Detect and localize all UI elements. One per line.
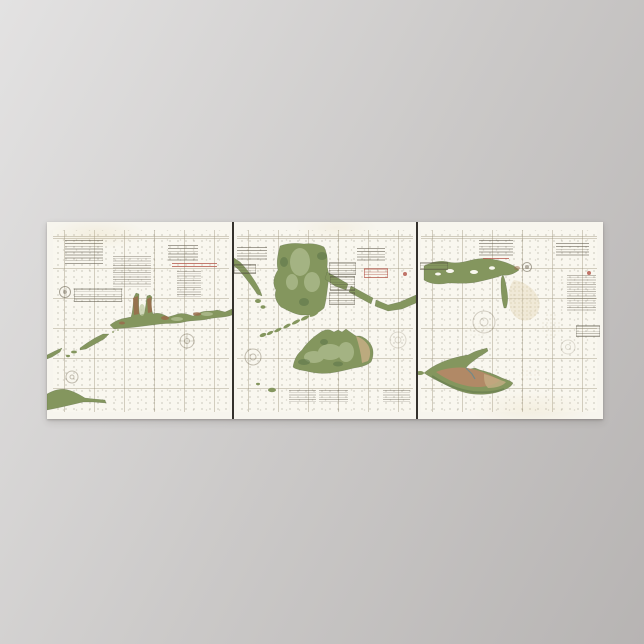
plum-island-sliver: [47, 348, 62, 359]
tuckernuck-islet: [418, 371, 424, 375]
sheet-join-line: [232, 222, 234, 419]
compass-rose: [66, 333, 195, 383]
tide-table: [330, 276, 355, 291]
tide-table: [329, 262, 356, 275]
tide-table: [234, 264, 256, 274]
sheet-join-line: [416, 222, 418, 419]
red-rosette-icon: [403, 272, 407, 276]
long-island-north-fork-tip: [47, 389, 106, 410]
chart-sheet: [47, 222, 603, 419]
chart-panel-middle: [234, 222, 416, 419]
survey-seal-icon: [59, 286, 71, 298]
notes-paragraph: [177, 271, 201, 297]
red-scale-bars: [483, 258, 509, 261]
survey-seal-icon: [522, 262, 532, 272]
title-block: [357, 248, 385, 262]
red-note-box: [364, 268, 388, 278]
title-block: [65, 240, 103, 266]
monomoy-spit: [501, 275, 508, 308]
title-block: [237, 247, 267, 260]
notes-paragraph: [289, 390, 316, 402]
title-block: [168, 245, 198, 261]
nantucket-island: [418, 348, 513, 394]
title-block: [556, 243, 589, 257]
chart-panel-right: [418, 222, 603, 419]
studio-background: [0, 0, 644, 644]
tide-table: [329, 292, 355, 305]
red-rosette-icon: [587, 271, 591, 275]
title-block: [479, 240, 513, 256]
shoal-stippling: [466, 278, 583, 381]
notes-paragraph: [113, 256, 151, 288]
tide-table: [420, 262, 448, 270]
notes-paragraph: [319, 390, 348, 402]
notes-paragraph: [383, 390, 410, 402]
outlying-islets: [256, 383, 276, 392]
notes-paragraph: [567, 275, 596, 311]
tide-table: [74, 288, 122, 302]
chart-panel-left: [47, 222, 232, 419]
fishers-island: [80, 334, 109, 350]
red-scale-bars: [172, 263, 217, 269]
tide-table: [576, 325, 600, 337]
